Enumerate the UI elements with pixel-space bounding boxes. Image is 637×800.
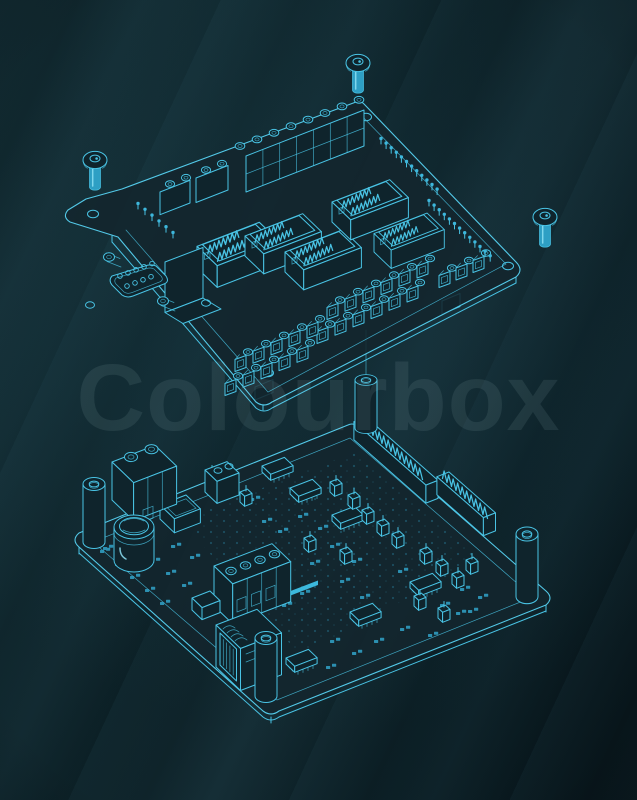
blueprint-scene [0, 0, 637, 800]
mini-terminal-2pos [205, 462, 239, 504]
standoff-left [83, 478, 105, 549]
standoff-top-corner [355, 375, 377, 434]
top-board [65, 96, 520, 411]
mounting-screw [83, 151, 107, 190]
standoff-bottom [255, 632, 277, 703]
bottom-board [75, 330, 550, 723]
electrolytic-capacitor [114, 515, 154, 572]
db9-jack-screw [104, 253, 122, 267]
mounting-screw [346, 54, 370, 93]
standoff-right [516, 527, 538, 604]
db9-shell [110, 265, 167, 297]
mounting-screw [533, 208, 557, 247]
illustration-canvas: Colourbox [0, 0, 637, 800]
